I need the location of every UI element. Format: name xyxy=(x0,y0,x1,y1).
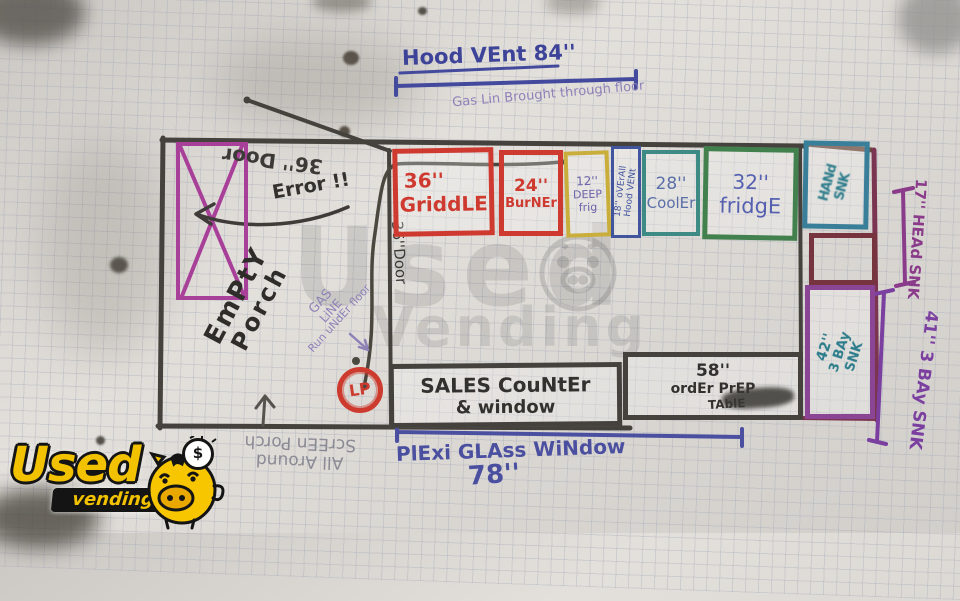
cooler-box: 28'' CoolEr xyxy=(642,150,700,236)
right-empty-box xyxy=(809,233,877,285)
burner-label: BurNEr xyxy=(505,196,557,211)
fridge-label: fridgE xyxy=(719,193,781,218)
pickup-line2: ordEr PrEP xyxy=(671,381,756,397)
hand-sink-box: HANd SNK xyxy=(802,140,870,229)
lp-label: LP xyxy=(348,380,372,400)
sales-counter-line2: & window xyxy=(456,396,556,418)
three-bay-sink-text: 42'' 3 BAy SNK xyxy=(812,325,869,379)
sales-counter-box: SALES CouNtEr & window xyxy=(389,362,623,428)
pickup-size: 58'' xyxy=(696,361,730,381)
deep-fridge-line3: frig xyxy=(579,201,598,215)
hood-vent-label: Hood VEnt 84'' xyxy=(402,41,576,69)
pickup-line3: TAblE xyxy=(708,396,746,412)
sales-counter-line1: SALES CouNtEr xyxy=(420,372,590,397)
cooler-size: 28'' xyxy=(656,174,687,194)
photo-of-floor-plan: { "page": {"description": "Hand-drawn co… xyxy=(0,0,960,533)
logo-coin-dollar: $ xyxy=(193,446,203,462)
overall-hood-vent-strip: 18'' oVErAll Hood VENt xyxy=(611,146,641,238)
order-pickup-table-box: 58'' ordEr PrEP TAblE xyxy=(623,352,803,420)
fridge-box: 32'' fridgE xyxy=(702,146,799,241)
three-bay-sink-box: 42'' 3 BAy SNK xyxy=(805,285,875,419)
cooler-label: CoolEr xyxy=(647,194,696,212)
griddle-box: 36'' GriddLE xyxy=(392,147,495,237)
plexi-glass-size: 78'' xyxy=(467,460,521,491)
burner-size: 24'' xyxy=(514,176,548,196)
logo-used-text: Used xyxy=(10,440,140,490)
burner-box: 24'' BurNEr xyxy=(499,150,563,236)
usedvending-logo: Used vending $ xyxy=(4,438,239,530)
griddle-size: 36'' xyxy=(404,168,444,193)
logo-coin: $ xyxy=(182,438,214,470)
overall-hood-vent-text: 18'' oVErAll Hood VENt xyxy=(613,165,639,219)
deep-fridge-size: 12'' xyxy=(576,174,598,189)
fridge-size: 32'' xyxy=(732,169,769,194)
hand-sink-scribble: HANd SNK xyxy=(817,163,856,207)
deep-fridge-box: 12'' DEEP frig xyxy=(564,150,612,238)
deep-fridge-line2: DEEP xyxy=(573,187,602,201)
screen-porch-line2: ScrEEn Porch xyxy=(244,431,356,453)
griddle-label: GriddLE xyxy=(399,191,488,217)
